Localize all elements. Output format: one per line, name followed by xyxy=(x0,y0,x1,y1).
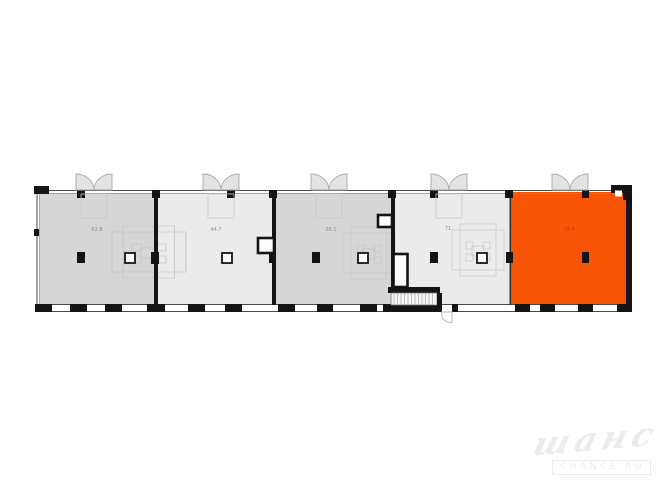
room-3-area-label: 36.1 xyxy=(325,227,336,233)
watermark: шанс CHANCE.RU xyxy=(536,424,662,475)
watermark-caption: CHANCE.RU xyxy=(552,460,651,475)
left-wall xyxy=(37,190,40,311)
room-1-area-label: 62.8 xyxy=(91,227,102,233)
room-2 xyxy=(158,193,272,304)
rooms xyxy=(40,192,627,304)
duct-box xyxy=(258,238,274,253)
exit-door-swing xyxy=(442,312,453,323)
corner-top-left xyxy=(34,186,49,194)
shaft-box xyxy=(378,215,392,227)
room-4-area-label: 71 xyxy=(445,226,451,232)
room-2-area-label: 44.7 xyxy=(210,227,221,233)
elevator-shaft xyxy=(394,254,408,287)
bottom-wall xyxy=(35,304,632,312)
room-5-highlighted[interactable] xyxy=(511,192,627,304)
room-1 xyxy=(40,193,154,304)
watermark-script-text: шанс xyxy=(530,419,668,460)
room-5-area-label: 78.4 xyxy=(563,227,574,233)
stair-exit-opening xyxy=(442,305,452,312)
floorplan-image: { "canvas": {"width": 670, "height": 503… xyxy=(0,0,670,503)
right-wall xyxy=(626,190,632,311)
window-piers xyxy=(35,304,632,312)
